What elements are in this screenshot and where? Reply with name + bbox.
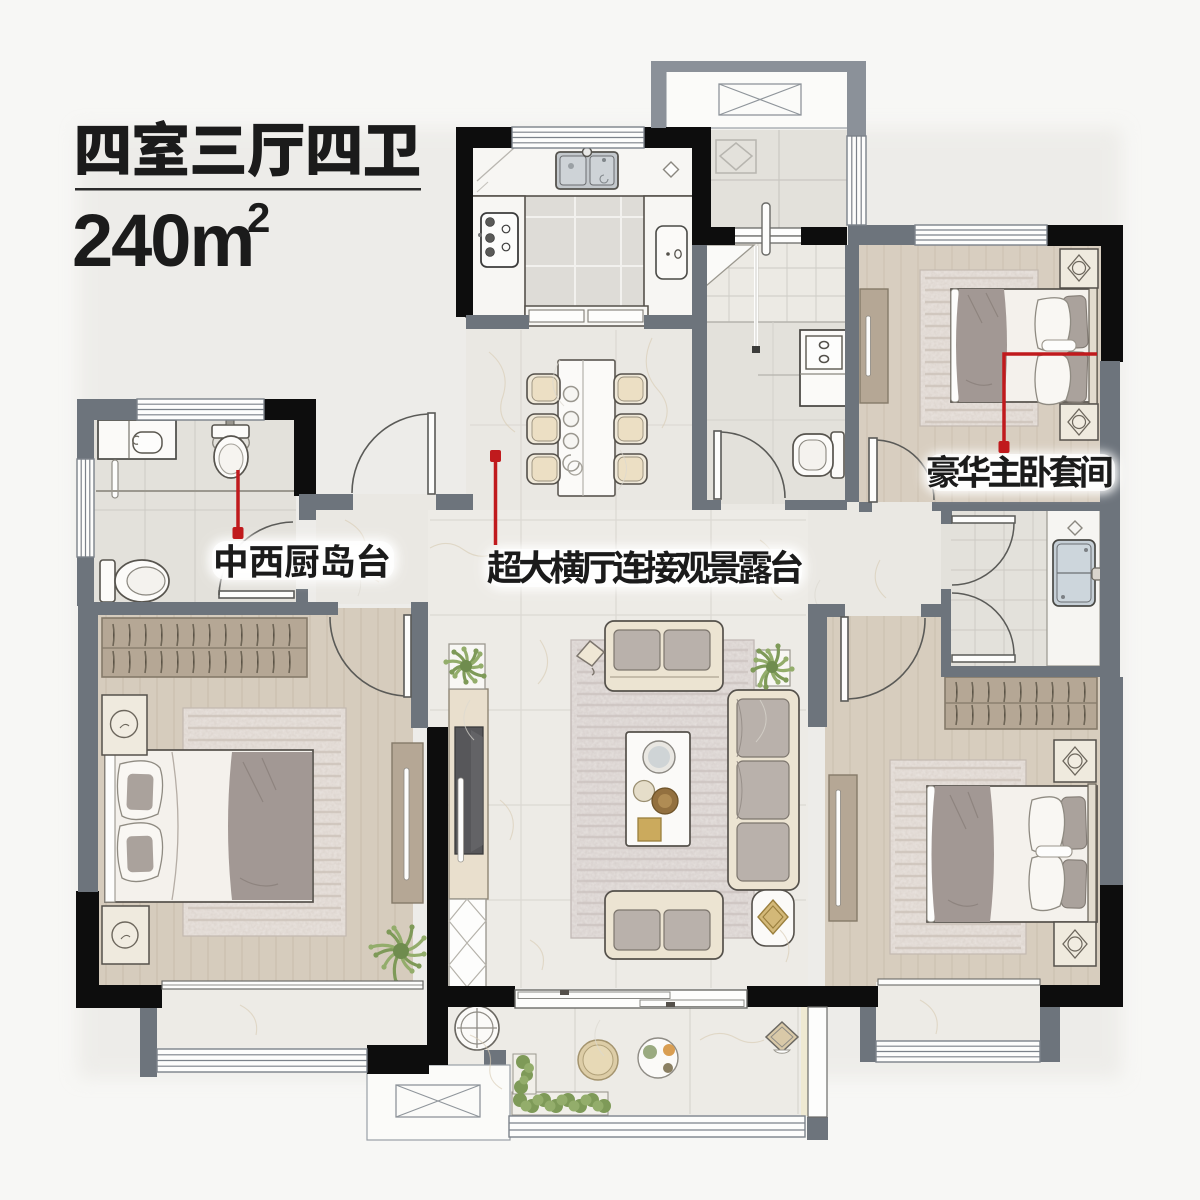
svg-text:2: 2 (247, 194, 270, 241)
svg-text:240m: 240m (72, 199, 253, 282)
